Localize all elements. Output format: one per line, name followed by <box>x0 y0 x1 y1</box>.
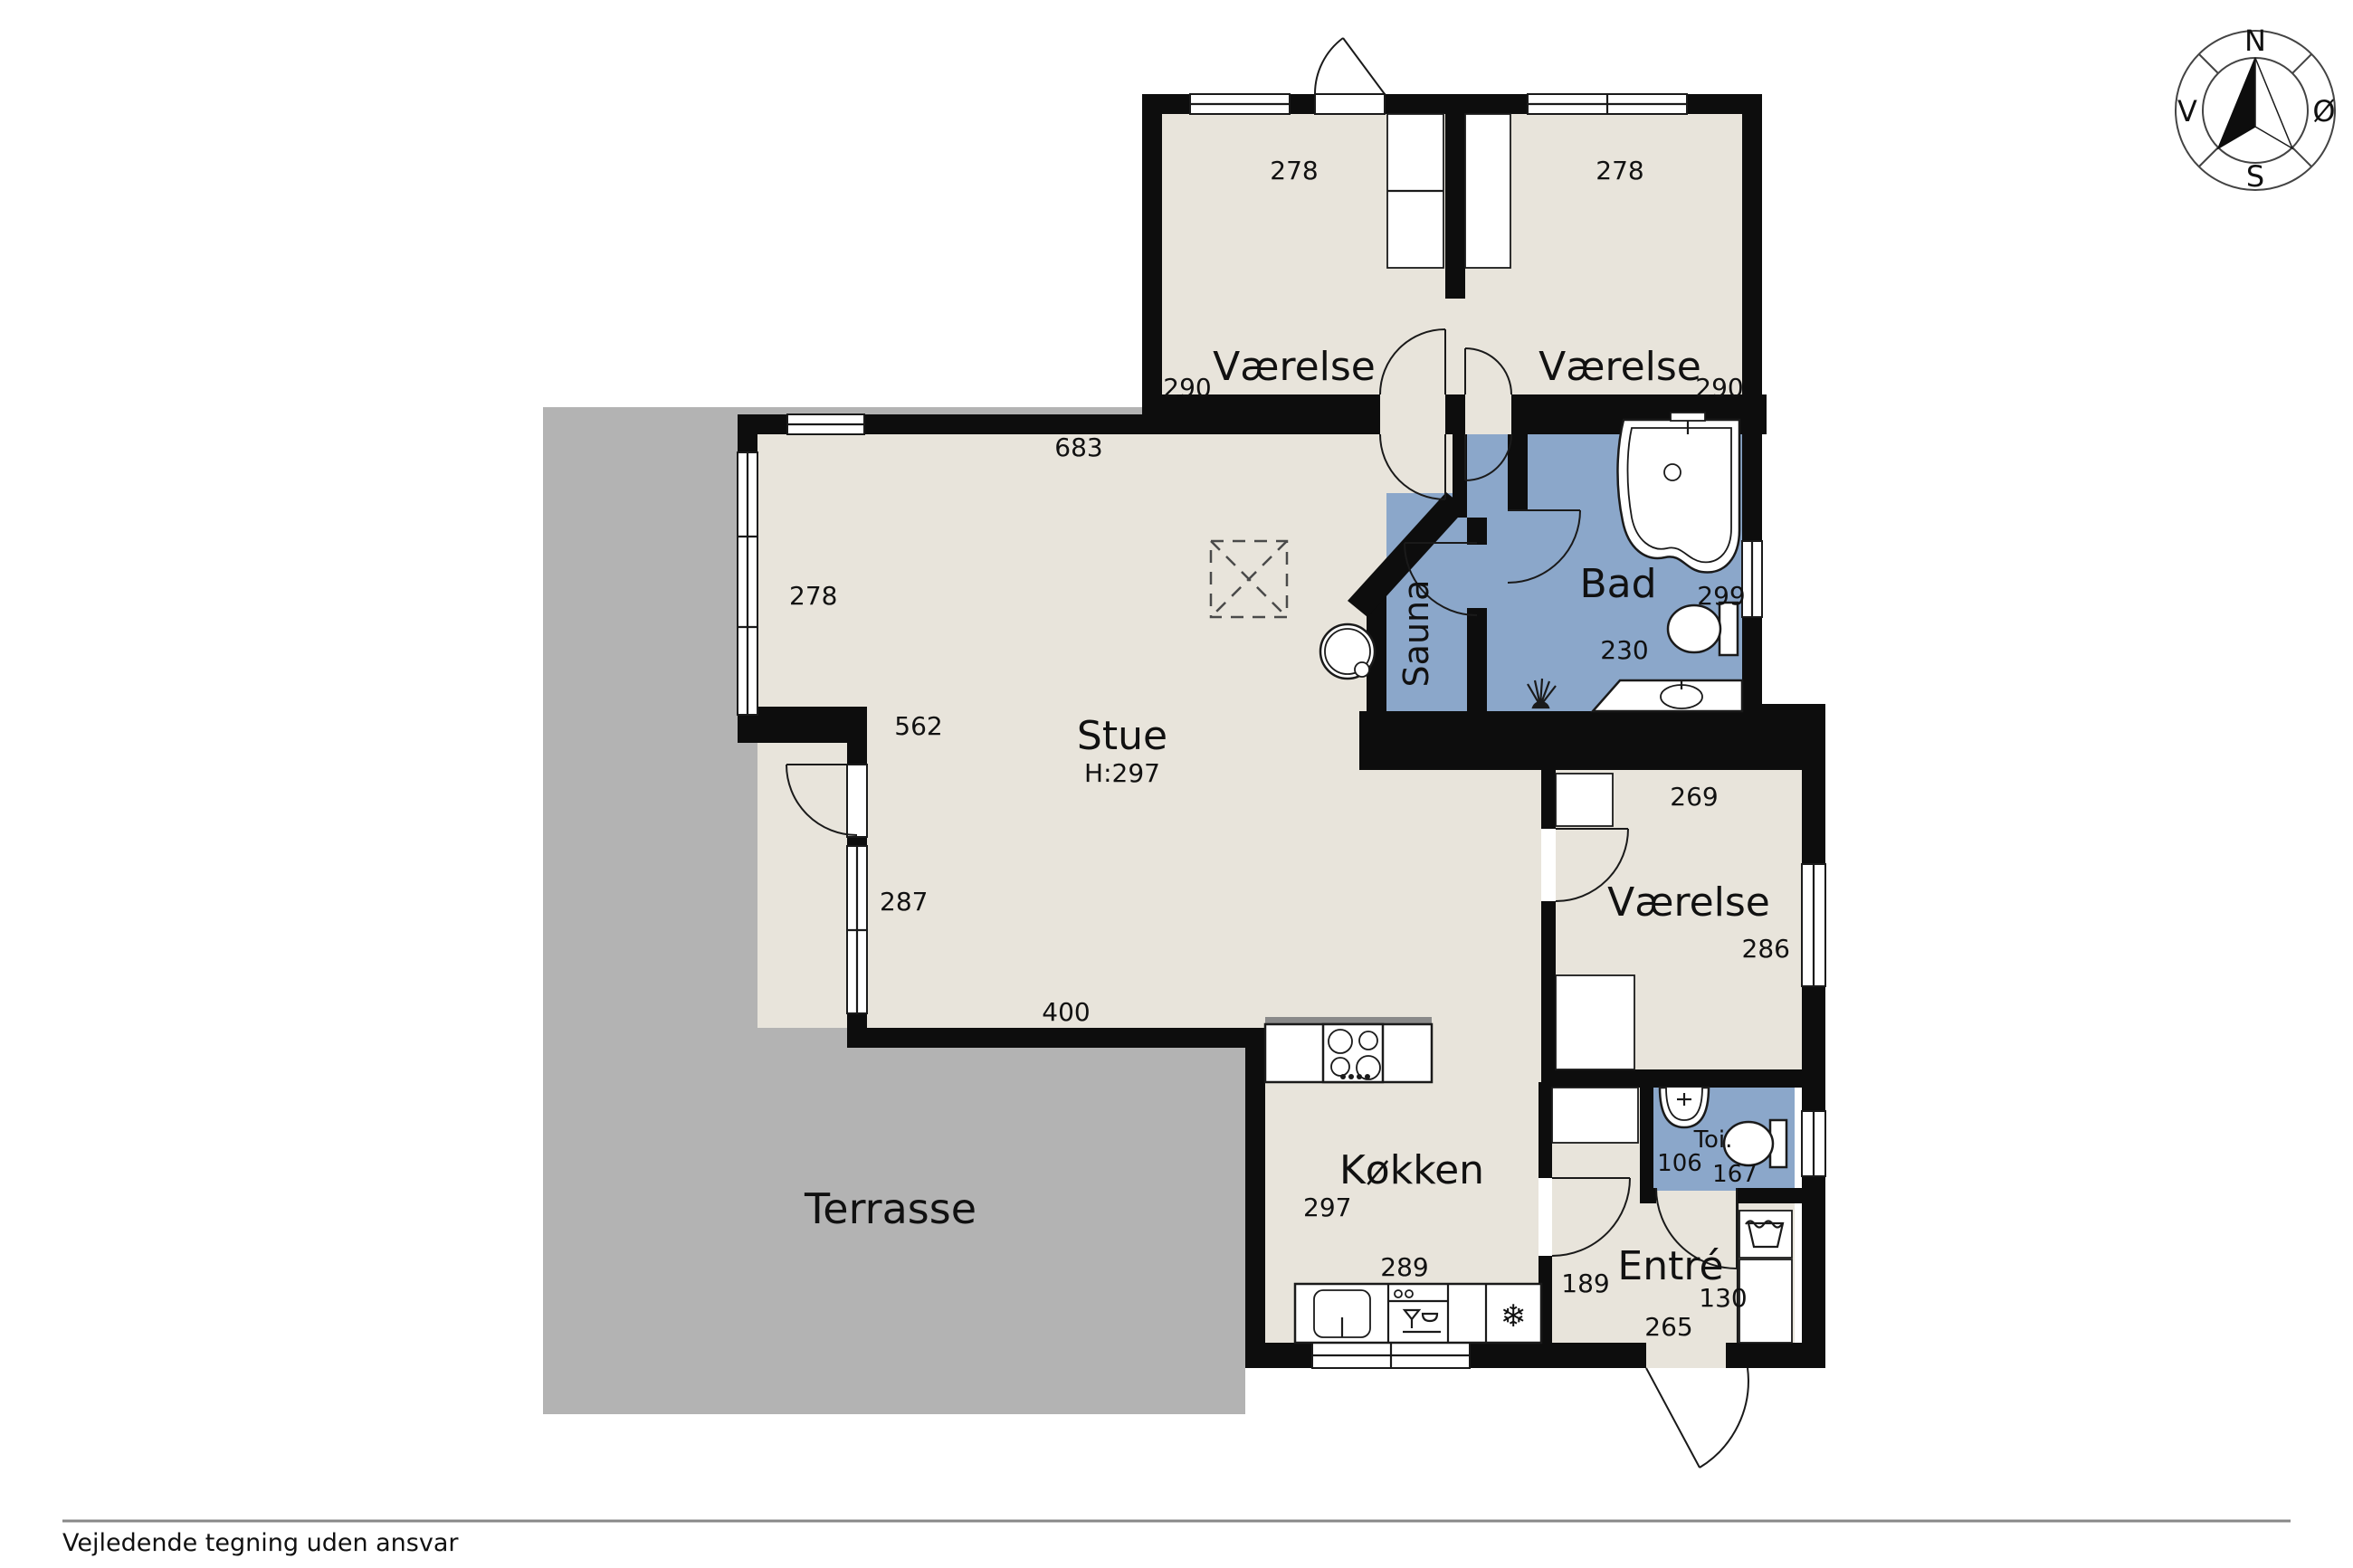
wood-stove <box>1320 624 1375 679</box>
fridge-icon: ❄ <box>1500 1298 1527 1335</box>
window-bedroom-tr <box>1528 94 1687 114</box>
window-living-left-upper <box>738 452 757 715</box>
footer: Vejledende tegning uden ansvar <box>62 1521 2291 1557</box>
kitchen-stove-counter <box>1265 1017 1432 1082</box>
toilet-dim-bottom: 167 <box>1712 1161 1758 1188</box>
living-label: Stue <box>1077 713 1167 759</box>
bedroom-tl-width: 278 <box>1270 156 1318 185</box>
compass-rose: N Ø S V <box>2176 24 2336 194</box>
bedroom-tr-label: Værelse <box>1538 344 1701 390</box>
living-dim-window-lower: 287 <box>880 887 928 917</box>
window-living-left-lower <box>847 846 867 1013</box>
door-opening-terrace <box>847 765 867 837</box>
door-opening-front <box>1646 1343 1726 1368</box>
bedroom-right-dim-right: 286 <box>1742 934 1790 964</box>
door-arc-front <box>1646 1368 1748 1468</box>
window-kitchen-south <box>1312 1343 1470 1368</box>
window-living-top <box>787 414 864 434</box>
bedroom-tr-width: 278 <box>1596 156 1643 185</box>
footer-disclaimer: Vejledende tegning uden ansvar <box>62 1529 459 1557</box>
floor-plan-page: ❄ Værelse 278 290 Værelse 278 290 Stue H… <box>0 0 2353 1568</box>
closet-entry <box>1552 1088 1638 1143</box>
window-toilet-right <box>1802 1111 1825 1176</box>
kitchen-label: Køkken <box>1339 1147 1484 1193</box>
compass-south: S <box>2246 159 2264 194</box>
bath-dim-height: 299 <box>1697 581 1745 611</box>
bath-label: Bad <box>1579 561 1656 607</box>
sauna-label: Sauna <box>1396 580 1436 688</box>
compass-north: N <box>2244 24 2266 58</box>
washing-machine <box>1738 1203 1792 1343</box>
bedroom-right-label: Værelse <box>1607 879 1770 926</box>
bath-dim-width: 230 <box>1600 635 1648 665</box>
living-dim-top: 683 <box>1054 432 1102 462</box>
bedroom-tl-label: Værelse <box>1213 344 1376 390</box>
bedroom-tr-depth: 290 <box>1695 373 1743 403</box>
bedroom-right-dim-top: 269 <box>1670 782 1718 812</box>
entry-dim-bottom: 265 <box>1644 1312 1692 1342</box>
entry-dim-right: 130 <box>1699 1283 1747 1313</box>
kitchen-dim-bottom: 289 <box>1380 1252 1428 1282</box>
window-bedroom-tl <box>1190 94 1290 114</box>
compass-east: Ø <box>2312 94 2335 128</box>
door-opening-bedroom-tl-exterior <box>1315 94 1385 114</box>
living-height: H:297 <box>1084 758 1160 788</box>
terrace-label: Terrasse <box>804 1184 976 1233</box>
kitchen-lower-counter: ❄ <box>1295 1284 1541 1343</box>
window-bedroom-right <box>1802 864 1825 986</box>
entry-dim-left: 189 <box>1561 1269 1609 1298</box>
door-arc-bedroom-tl-exterior <box>1315 38 1385 94</box>
living-dim-window-upper: 278 <box>789 581 837 611</box>
bedroom-tl-depth: 290 <box>1163 373 1211 403</box>
living-dim-mid: 562 <box>894 711 942 741</box>
closet-bedroom-right-sw <box>1556 975 1634 1069</box>
closet-bedroom-right-nw <box>1556 774 1613 826</box>
toilet-dim-left: 106 <box>1657 1150 1702 1177</box>
living-dim-bottom: 400 <box>1042 997 1090 1027</box>
sink-bath <box>1593 680 1742 711</box>
bathtub <box>1617 413 1739 573</box>
closet-bedroom-tr <box>1465 114 1510 268</box>
compass-west: V <box>2177 94 2197 128</box>
floor-plan-canvas: ❄ Værelse 278 290 Værelse 278 290 Stue H… <box>0 0 2353 1568</box>
kitchen-dim-left: 297 <box>1303 1193 1351 1222</box>
